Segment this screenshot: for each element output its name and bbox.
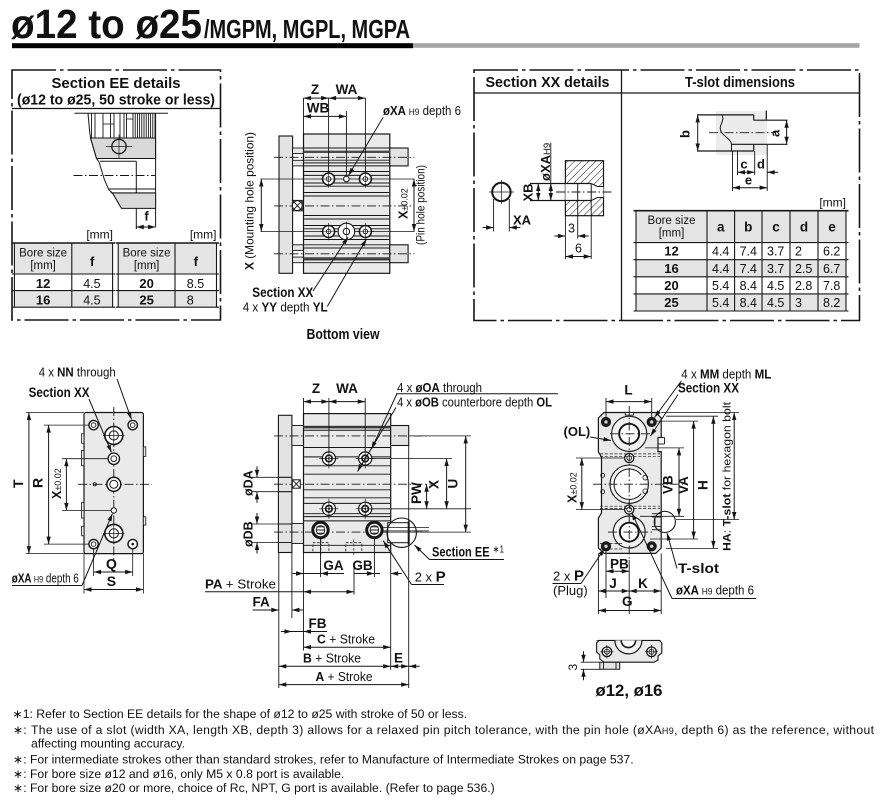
svg-text:Z: Z [311,82,319,97]
svg-text:Section XX: Section XX [29,385,90,400]
svg-text:[mm]: [mm] [30,260,56,272]
svg-text:S: S [107,573,116,589]
svg-text:[mm]: [mm] [190,228,217,242]
svg-text:16: 16 [36,293,50,308]
svg-text:PW: PW [409,482,424,504]
svg-text:(ø12 to ø25, 50 stroke or less: (ø12 to ø25, 50 stroke or less) [17,92,215,109]
svg-text:∗: For bore size ø20 or more,: ∗: For bore size ø20 or more, choice of … [13,781,495,795]
svg-text:d: d [800,220,808,235]
svg-text:12: 12 [664,244,678,259]
svg-text:c: c [772,220,780,235]
svg-text:c: c [740,157,747,172]
svg-text:FB: FB [309,616,327,631]
svg-text:Z: Z [312,381,320,396]
svg-text:øXA H9 depth 6: øXA H9 depth 6 [12,571,79,586]
svg-text:affecting mounting accuracy.: affecting mounting accuracy. [31,737,185,751]
svg-text:20: 20 [139,276,153,291]
svg-text:4.5: 4.5 [83,294,100,308]
svg-text:2.8: 2.8 [795,279,812,293]
svg-text:T-slot: T-slot [678,561,720,576]
svg-text:[mm]: [mm] [659,228,685,240]
svg-text:2 x P: 2 x P [553,568,584,585]
svg-text:e: e [828,220,836,235]
svg-text:d: d [757,157,765,172]
svg-text:4.4: 4.4 [712,245,729,259]
svg-text:(Plug): (Plug) [553,583,588,598]
svg-text:7.4: 7.4 [740,245,757,259]
svg-text:7.4: 7.4 [740,262,757,276]
svg-text:3.7: 3.7 [767,262,784,276]
svg-text:2.5: 2.5 [795,262,812,276]
svg-text:Bottom view: Bottom view [307,327,381,343]
svg-text:VB: VB [661,475,676,494]
svg-text:3: 3 [566,664,580,671]
svg-text:[mm]: [mm] [134,260,160,272]
svg-text:K: K [638,576,648,591]
svg-text:[mm]: [mm] [86,228,113,242]
svg-text:3: 3 [795,296,802,310]
svg-text:6.2: 6.2 [823,245,840,259]
svg-text:25: 25 [664,295,678,310]
svg-text:B + Stroke: B + Stroke [303,651,361,666]
svg-text:4 x MM depth ML: 4 x MM depth ML [681,367,771,382]
svg-text:3: 3 [568,222,575,236]
svg-text:4 x øOA through: 4 x øOA through [397,380,482,395]
svg-text:E: E [394,651,403,666]
svg-text:∗: For intermediate strokes ot: ∗: For intermediate strokes other than s… [13,753,634,767]
svg-text:WA: WA [336,82,358,97]
svg-text:b: b [744,220,752,235]
svg-text:a: a [717,220,725,235]
svg-text:16: 16 [664,261,678,276]
svg-text:5.4: 5.4 [712,279,729,293]
svg-text:4.5: 4.5 [767,296,784,310]
svg-text:2: 2 [795,245,802,259]
svg-text:8: 8 [187,294,194,308]
svg-text:T: T [10,479,26,488]
svg-text:f: f [144,209,149,224]
svg-text:4 x NN through: 4 x NN through [39,365,116,380]
svg-text:Bore size: Bore size [19,248,67,260]
svg-text:[mm]: [mm] [819,196,846,210]
svg-text:∗1: Refer to Section EE detail: ∗1: Refer to Section EE details for the … [13,707,468,721]
svg-text:12: 12 [36,276,50,291]
svg-text:ø12, ø16: ø12, ø16 [596,682,663,700]
svg-text:U: U [446,479,461,489]
svg-text:4 x YY depth YL: 4 x YY depth YL [243,300,328,315]
svg-text:øDB: øDB [242,521,256,547]
svg-text:8.4: 8.4 [740,279,757,293]
svg-text:6: 6 [575,242,582,256]
svg-text:Section XX details: Section XX details [486,74,610,91]
svg-text:4.5: 4.5 [767,279,784,293]
svg-text:ø12 to ø25: ø12 to ø25 [11,1,202,47]
svg-text:X: X [427,480,442,489]
svg-text:b: b [678,130,693,138]
svg-text:H: H [695,480,710,490]
svg-text:GA: GA [323,558,344,573]
svg-text:8.2: 8.2 [823,296,840,310]
svg-text:HA: T-slot for hexagon bolt: HA: T-slot for hexagon bolt [722,402,734,551]
svg-text:3.7: 3.7 [767,245,784,259]
svg-text:Section XX: Section XX [678,381,739,396]
svg-text:8.5: 8.5 [187,277,204,291]
svg-text:8.4: 8.4 [740,296,757,310]
svg-text:4 x øOB counterbore depth OL: 4 x øOB counterbore depth OL [397,395,552,410]
svg-text:(Pin hole position): (Pin hole position) [414,165,428,245]
svg-text:The use of a slot (width XA, l: The use of a slot (width XA, length XB, … [31,723,875,737]
svg-text:R: R [30,478,46,488]
svg-text:25: 25 [139,293,153,308]
svg-text:Section EE details: Section EE details [52,75,181,92]
svg-text:f: f [194,254,199,269]
svg-text:A + Stroke: A + Stroke [316,669,373,684]
svg-text:Bore size: Bore size [123,248,171,260]
svg-text:FA: FA [253,595,271,610]
svg-text:X±0.02: X±0.02 [50,468,64,499]
svg-text:VA: VA [676,476,691,494]
svg-text:X±0.02: X±0.02 [566,472,580,503]
svg-text:6.7: 6.7 [823,262,840,276]
svg-text:5.4: 5.4 [712,296,729,310]
svg-text:2 x P: 2 x P [415,569,446,586]
svg-text:7.8: 7.8 [823,279,840,293]
svg-text:C + Stroke: C + Stroke [317,632,375,647]
svg-text:XB: XB [521,183,536,201]
svg-text:PA + Stroke: PA + Stroke [205,577,276,592]
svg-text:∗:: ∗: [13,723,27,737]
svg-text:J: J [609,576,617,591]
svg-text:Bore size: Bore size [648,215,696,227]
svg-text:WB: WB [307,101,330,116]
svg-text:XA: XA [513,213,532,228]
svg-text:4.5: 4.5 [83,277,100,291]
svg-text:/MGPM, MGPL, MGPA: /MGPM, MGPL, MGPA [204,14,410,44]
svg-text:øDA: øDA [242,470,256,496]
svg-text:WA: WA [336,381,358,396]
svg-text:G: G [622,594,633,609]
svg-text:øXA H9 depth 6: øXA H9 depth 6 [383,103,461,118]
svg-text:a: a [768,129,783,137]
svg-text:∗: For bore size ø12 and ø16,: ∗: For bore size ø12 and ø16, only M5 x … [13,767,344,781]
svg-text:GB: GB [352,558,373,573]
svg-text:20: 20 [664,278,678,293]
svg-text:øXA H9 depth 6: øXA H9 depth 6 [676,583,754,598]
svg-text:(OL): (OL) [564,424,591,439]
svg-text:Q: Q [106,556,117,572]
svg-text:e: e [745,173,752,188]
svg-text:X (Mounting hole position): X (Mounting hole position) [243,132,257,270]
svg-text:T-slot dimensions: T-slot dimensions [685,74,795,91]
svg-text:X±0.02: X±0.02 [397,188,411,219]
svg-text:Section XX: Section XX [252,285,313,300]
svg-text:L: L [624,383,632,398]
svg-text:f: f [90,254,95,269]
svg-text:4.4: 4.4 [712,262,729,276]
